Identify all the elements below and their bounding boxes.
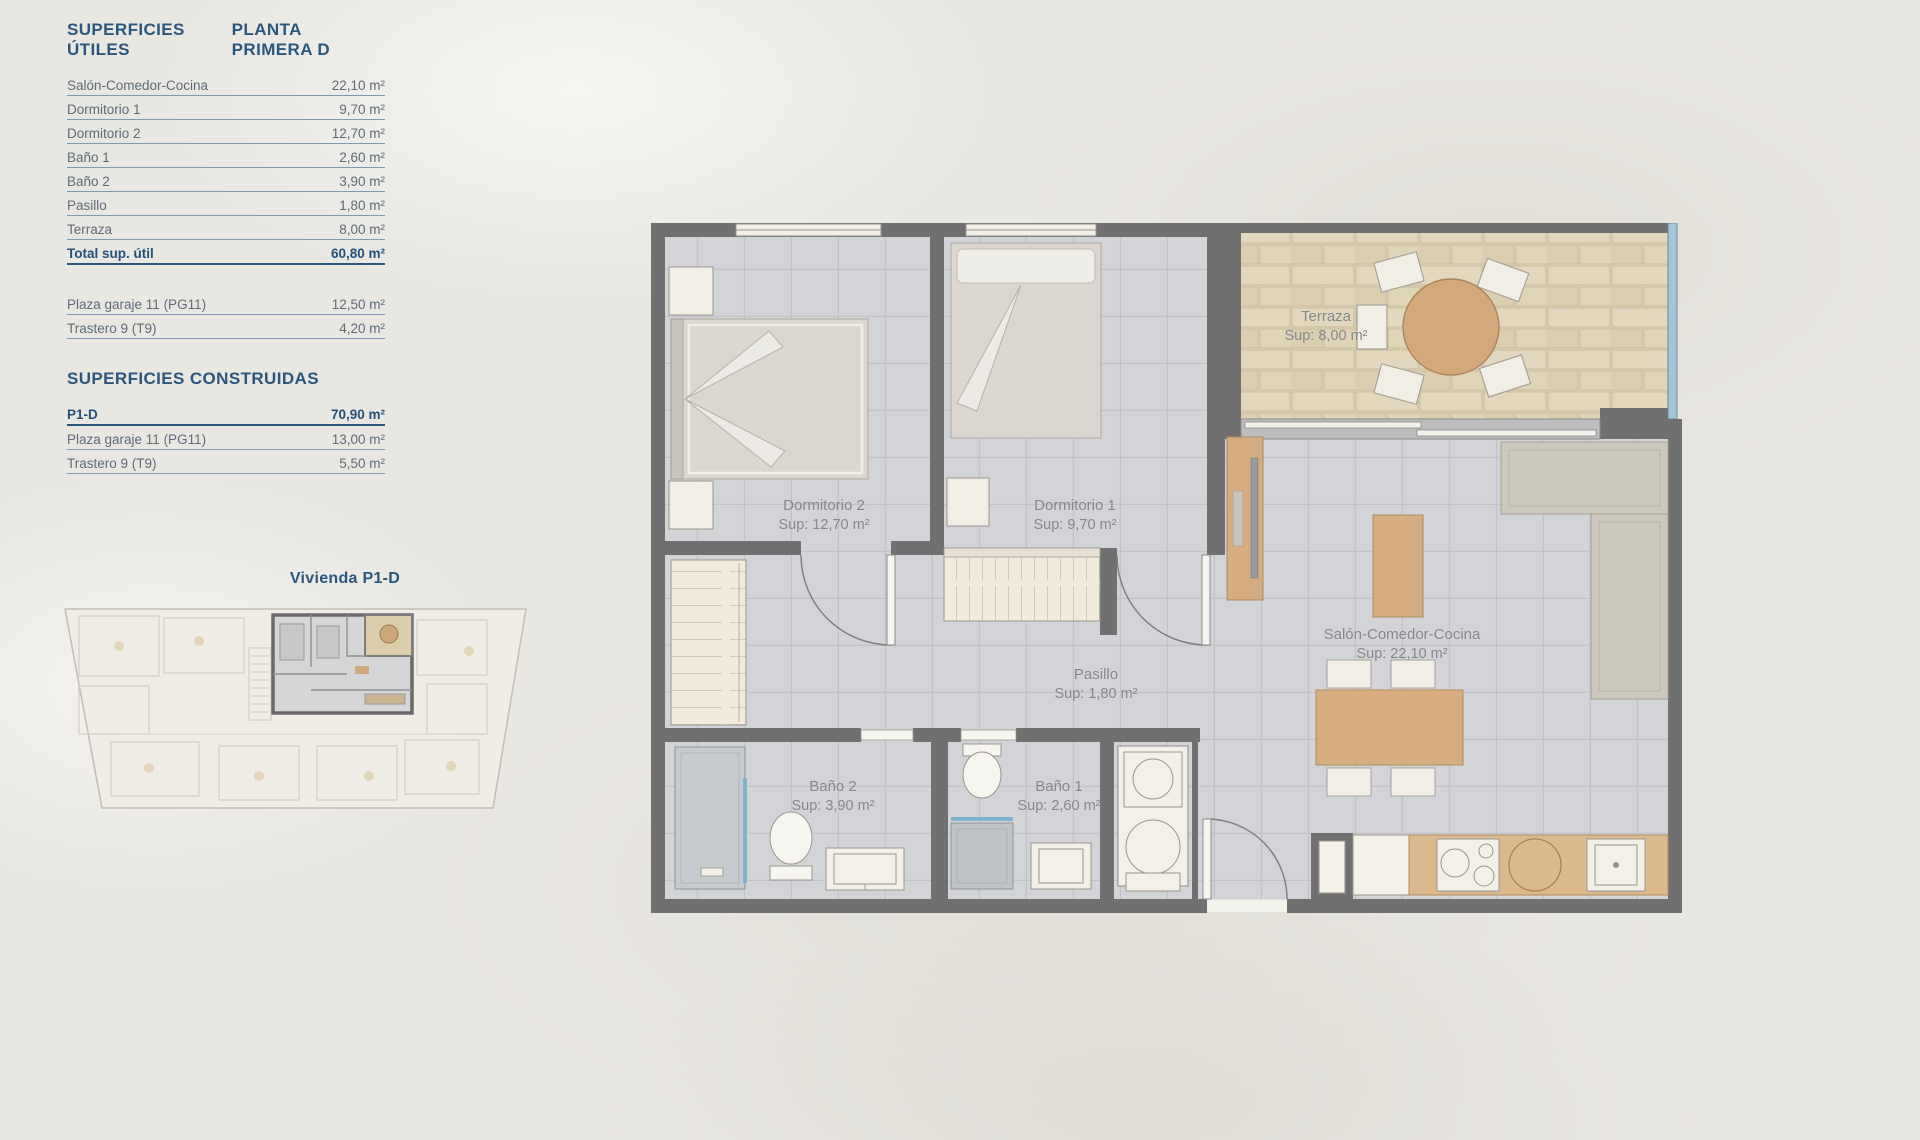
row-value: 5,50 m² bbox=[339, 456, 385, 471]
row-value: 1,80 m² bbox=[339, 198, 385, 213]
pillow bbox=[957, 249, 1095, 283]
room-area: Sup: 2,60 m² bbox=[979, 797, 1139, 816]
row-value: 13,00 m² bbox=[332, 432, 385, 447]
room-label-pasillo: Pasillo Sup: 1,80 m² bbox=[1016, 665, 1176, 703]
highlighted-unit-p1d bbox=[273, 615, 412, 713]
table-row: Dormitorio 1 9,70 m² bbox=[67, 96, 385, 120]
entrance-threshold bbox=[1207, 900, 1287, 912]
row-value: 9,70 m² bbox=[339, 102, 385, 117]
glass-railing bbox=[1668, 223, 1677, 419]
shower bbox=[675, 747, 747, 889]
spacer bbox=[67, 339, 385, 365]
washbasin bbox=[826, 848, 904, 890]
door-bano2 bbox=[861, 730, 913, 740]
hob bbox=[1437, 839, 1499, 891]
table-row-total: Total sup. útil 60,80 m² bbox=[67, 240, 385, 265]
room-label-dormitorio2: Dormitorio 2 Sup: 12,70 m² bbox=[744, 496, 904, 534]
row-value: 70,90 m² bbox=[331, 407, 385, 422]
shower-glass bbox=[743, 778, 747, 883]
tv-sideboard bbox=[1227, 437, 1263, 600]
row-value: 2,60 m² bbox=[339, 150, 385, 165]
building-overview-svg bbox=[49, 606, 527, 811]
sliding-door-terrace bbox=[1241, 419, 1600, 439]
room-label-terraza: Terraza Sup: 8,00 m² bbox=[1246, 307, 1406, 345]
spacer bbox=[67, 265, 385, 291]
room-name: Pasillo bbox=[1016, 665, 1176, 685]
sink bbox=[1587, 839, 1645, 891]
shower-tray bbox=[951, 817, 1013, 889]
row-label: Dormitorio 2 bbox=[67, 126, 141, 141]
row-value: 60,80 m² bbox=[331, 246, 385, 261]
surface-table-panel: SUPERFICIES ÚTILES PLANTA PRIMERA D Saló… bbox=[67, 20, 385, 474]
room-label-bano2: Baño 2 Sup: 3,90 m² bbox=[753, 777, 913, 815]
row-value: 3,90 m² bbox=[339, 174, 385, 189]
table-row: Baño 2 3,90 m² bbox=[67, 168, 385, 192]
room-name: Salón-Comedor-Cocina bbox=[1302, 625, 1502, 645]
table-row: Plaza garaje 11 (PG11) 13,00 m² bbox=[67, 426, 385, 450]
row-value: 12,70 m² bbox=[332, 126, 385, 141]
row-label: Baño 1 bbox=[67, 150, 110, 165]
laundry-column bbox=[1118, 746, 1188, 891]
room-area: Sup: 12,70 m² bbox=[744, 516, 904, 535]
table-row: Dormitorio 2 12,70 m² bbox=[67, 120, 385, 144]
dining-table bbox=[1316, 690, 1463, 765]
room-area: Sup: 8,00 m² bbox=[1246, 327, 1406, 346]
room-name: Dormitorio 2 bbox=[744, 496, 904, 516]
entry-closet bbox=[671, 560, 746, 725]
nightstand bbox=[947, 478, 989, 526]
utiles-title: SUPERFICIES ÚTILES bbox=[67, 20, 232, 60]
row-label: Trastero 9 (T9) bbox=[67, 321, 157, 336]
room-name: Terraza bbox=[1246, 307, 1406, 327]
shower-glass bbox=[951, 817, 1013, 821]
round-table bbox=[1403, 279, 1499, 375]
row-label: Terraza bbox=[67, 222, 112, 237]
row-label: Plaza garaje 11 (PG11) bbox=[67, 297, 206, 312]
nightstand bbox=[669, 481, 713, 529]
dormitorio1-furniture bbox=[944, 243, 1101, 621]
panel-header: SUPERFICIES ÚTILES PLANTA PRIMERA D bbox=[67, 20, 385, 60]
building-overview-plan bbox=[49, 606, 527, 811]
table-row: Pasillo 1,80 m² bbox=[67, 192, 385, 216]
room-name: Baño 2 bbox=[753, 777, 913, 797]
construidas-title: SUPERFICIES CONSTRUIDAS bbox=[67, 369, 385, 389]
mini-plan-title: Vivienda P1-D bbox=[230, 570, 460, 588]
row-label: Trastero 9 (T9) bbox=[67, 456, 157, 471]
table-row: Terraza 8,00 m² bbox=[67, 216, 385, 240]
room-area: Sup: 3,90 m² bbox=[753, 797, 913, 816]
fridge bbox=[1353, 835, 1409, 895]
nightstand bbox=[669, 267, 713, 315]
room-label-salon: Salón-Comedor-Cocina Sup: 22,10 m² bbox=[1302, 625, 1502, 663]
wardrobe bbox=[944, 548, 1100, 621]
room-name: Dormitorio 1 bbox=[995, 496, 1155, 516]
table-row: Salón-Comedor-Cocina 22,10 m² bbox=[67, 72, 385, 96]
row-value: 12,50 m² bbox=[332, 297, 385, 312]
row-value: 4,20 m² bbox=[339, 321, 385, 336]
toilet bbox=[770, 812, 812, 880]
row-label: Pasillo bbox=[67, 198, 107, 213]
door-bano1 bbox=[961, 730, 1016, 740]
tall-cabinet bbox=[1319, 841, 1345, 893]
row-value: 22,10 m² bbox=[332, 78, 385, 93]
floor-title: PLANTA PRIMERA D bbox=[232, 20, 385, 60]
table-row-highlight: P1-D 70,90 m² bbox=[67, 401, 385, 426]
table-row: Plaza garaje 11 (PG11) 12,50 m² bbox=[67, 291, 385, 315]
kitchen-counter bbox=[1319, 835, 1668, 895]
row-label: Baño 2 bbox=[67, 174, 110, 189]
table-row: Baño 1 2,60 m² bbox=[67, 144, 385, 168]
coffee-table bbox=[1373, 515, 1423, 617]
room-label-bano1: Baño 1 Sup: 2,60 m² bbox=[979, 777, 1139, 815]
row-label: Total sup. útil bbox=[67, 246, 154, 261]
row-label: P1-D bbox=[67, 407, 98, 422]
room-name: Baño 1 bbox=[979, 777, 1139, 797]
table-row: Trastero 9 (T9) 4,20 m² bbox=[67, 315, 385, 339]
row-label: Salón-Comedor-Cocina bbox=[67, 78, 208, 93]
row-label: Plaza garaje 11 (PG11) bbox=[67, 432, 206, 447]
room-area: Sup: 22,10 m² bbox=[1302, 645, 1502, 664]
room-area: Sup: 9,70 m² bbox=[995, 516, 1155, 535]
floorplan-page: { "left_panel": { "utiles": { "title": "… bbox=[0, 0, 1920, 1140]
table-row: Trastero 9 (T9) 5,50 m² bbox=[67, 450, 385, 474]
bed-headboard bbox=[671, 319, 683, 479]
washbasin bbox=[1031, 843, 1091, 889]
room-area: Sup: 1,80 m² bbox=[1016, 685, 1176, 704]
main-floor-plan: Terraza Sup: 8,00 m² Dormitorio 2 Sup: 1… bbox=[651, 223, 1682, 913]
row-value: 8,00 m² bbox=[339, 222, 385, 237]
room-label-dormitorio1: Dormitorio 1 Sup: 9,70 m² bbox=[995, 496, 1155, 534]
row-label: Dormitorio 1 bbox=[67, 102, 141, 117]
